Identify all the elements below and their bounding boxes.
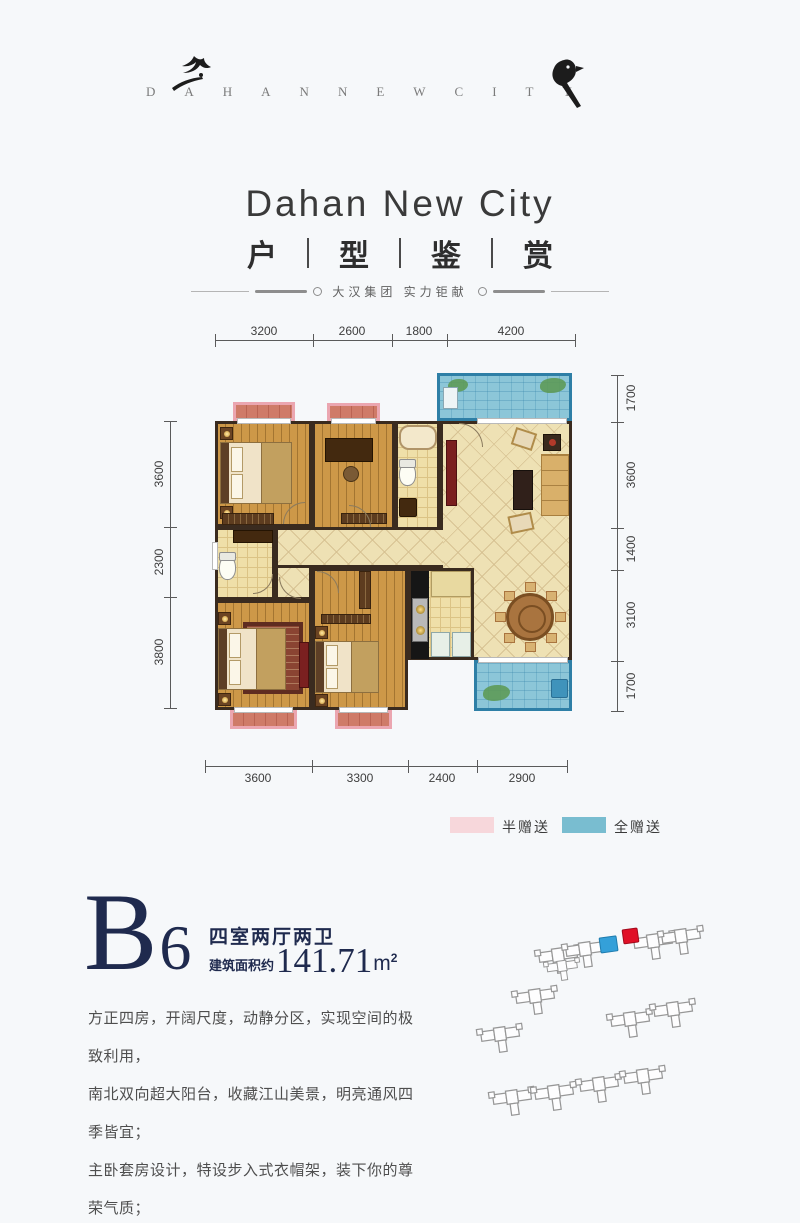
divider-line [493,290,545,293]
description-line: 方正四房，开阔尺度，动静分区，实现空间的极致利用， [88,1000,423,1076]
divider-slogan: 大汉集团 实力钜献 [332,283,467,300]
sink [431,632,450,657]
divider-ring [478,287,487,296]
subtitle-char: 赏 [523,231,553,275]
desk [325,438,373,462]
divider-bar [399,238,401,268]
plant-icon [540,378,566,393]
bed [315,641,379,693]
divider-line [255,290,307,293]
unit-number: 6 [159,911,191,985]
side-table [543,434,561,451]
dining-table [506,593,554,641]
plant-icon [483,685,510,701]
bed [220,442,292,504]
dining-chair [525,582,536,592]
toilet-icon [219,556,236,580]
nightstand [218,612,231,625]
corridor [275,527,443,568]
highlight-unit-blue [599,936,618,953]
building [575,1073,624,1105]
area-value: 141.71 [276,944,372,978]
bed [218,628,286,690]
building [657,925,706,957]
bathtub [399,425,437,450]
flyer-page: DAHANNEWCITY Dahan New City 户 型 鉴 赏 大汉集团… [0,0,800,1223]
area-prefix: 建筑面积约 [209,955,274,978]
dining-chair [495,612,506,622]
legend-swatch-full-gift [562,817,606,833]
vanity [233,530,273,543]
window [237,418,291,424]
dining-chair [546,591,557,601]
window [212,542,218,570]
description: 方正四房，开阔尺度，动静分区，实现空间的极致利用， 南北双向超大阳台，收藏江山美… [88,1000,423,1223]
page-title: Dahan New City [0,183,800,225]
legend-swatch-half-gift [450,817,494,833]
divider-bar [491,238,493,268]
balcony-door [478,657,568,663]
highlight-unit-red [622,928,639,944]
building [476,1023,525,1055]
divider-line [551,291,609,292]
sofa [541,454,569,516]
subtitle-chars: 户 型 鉴 赏 [0,231,800,275]
wardrobe [321,614,371,624]
building [530,1081,579,1113]
unit-letter: B [84,876,157,988]
divider-bar [307,238,309,268]
window [339,707,388,713]
wardrobe [222,513,274,525]
tv-cabinet [446,440,457,506]
storage-box-icon [551,679,568,698]
coffee-table [513,470,533,510]
balcony-south [474,660,572,711]
description-line: 主卧套房设计，特设步入式衣帽架，装下你的尊荣气质； [88,1152,423,1223]
legend-label: 全赠送 [614,817,662,837]
building [649,998,698,1030]
nightstand [218,693,231,706]
desk-chair [343,466,359,482]
dining-chair [525,642,536,652]
unit-code: B 6 [84,876,191,988]
nightstand [220,427,233,440]
bird-branch-icon [168,50,216,100]
nightstand [315,694,328,707]
washbasin [399,498,417,517]
stove-icon [412,598,428,642]
dimension-line-left: 3600 2300 3800 [170,421,171,708]
building [606,1008,655,1040]
balcony-door [477,418,567,424]
balcony-north [437,373,572,421]
nightstand [315,626,328,639]
dim-label: 3800 [152,639,166,666]
building [511,985,560,1017]
divider-line [191,291,249,292]
legend-label: 半赠送 [502,817,550,837]
window [234,707,293,713]
site-plan [455,900,745,1150]
description-line: 南北双向超大阳台，收藏江山美景，明亮通风四季皆宜； [88,1076,423,1152]
floor-plan [175,330,635,810]
subtitle-char: 鉴 [431,231,461,275]
dining-chair [555,612,566,622]
subtitle-char: 型 [339,231,369,275]
kitchen-worktop [431,571,471,597]
magpie-icon [540,56,584,116]
dining-chair [546,633,557,643]
dresser [299,642,309,688]
building [619,1065,668,1097]
sink [452,632,471,657]
ornamental-divider: 大汉集团 实力钜献 [0,283,800,300]
divider-ring [313,287,322,296]
toilet-icon [399,463,416,486]
wardrobe [359,571,371,609]
window [331,418,376,424]
subtitle-char: 户 [247,231,277,275]
unit-area: 建筑面积约 141.71 m2 [209,944,397,978]
washer-icon [443,387,458,409]
area-unit: m2 [373,951,397,978]
dim-label: 2300 [152,549,166,576]
dim-label: 3600 [152,461,166,488]
building [488,1086,537,1118]
